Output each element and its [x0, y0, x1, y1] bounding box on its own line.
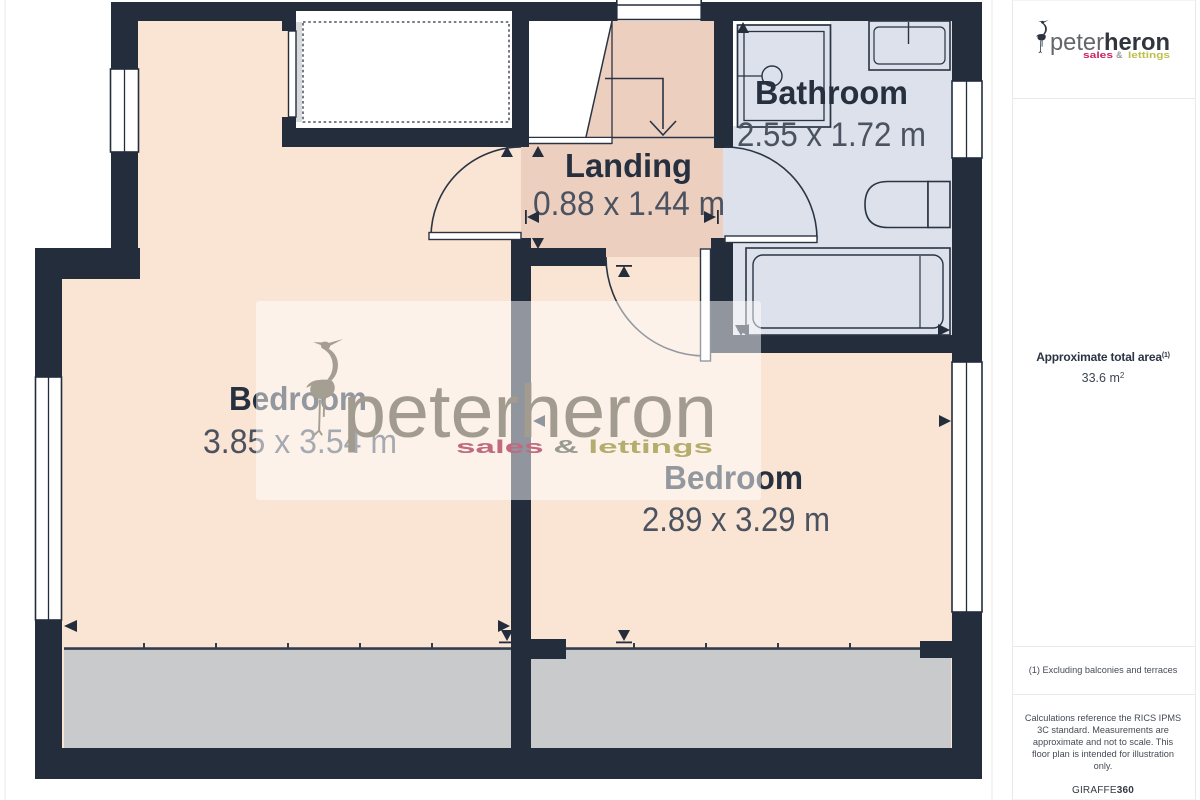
- svg-text:2.89 x 3.29 m: 2.89 x 3.29 m: [642, 501, 830, 539]
- svg-text:Calculations reference the RIC: Calculations reference the RICS IPMS: [1025, 713, 1181, 723]
- svg-text:approximate and not to scale.: approximate and not to scale. This: [1033, 737, 1174, 747]
- svg-text:GIRAFFE360: GIRAFFE360: [1072, 785, 1134, 796]
- svg-text:(1) Excluding balconies and te: (1) Excluding balconies and terraces: [1029, 665, 1178, 675]
- svg-text:2.55 x 1.72 m: 2.55 x 1.72 m: [737, 116, 926, 154]
- svg-text:Landing: Landing: [565, 147, 692, 184]
- svg-text:only.: only.: [1094, 761, 1113, 771]
- svg-text:3C standard. Measurements are: 3C standard. Measurements are: [1037, 725, 1169, 735]
- svg-text:floor plan is intended for ill: floor plan is intended for illustration: [1032, 749, 1174, 759]
- svg-text:&: &: [1116, 50, 1123, 60]
- svg-text:sales: sales: [1083, 50, 1113, 60]
- svg-text:lettings: lettings: [1128, 50, 1170, 60]
- svg-text:Approximate total area(1): Approximate total area(1): [1036, 350, 1170, 364]
- svg-text:sales & lettings: sales & lettings: [456, 437, 713, 457]
- svg-text:33.6 m2: 33.6 m2: [1082, 371, 1125, 385]
- svg-text:Bathroom: Bathroom: [755, 74, 908, 111]
- svg-text:0.88 x 1.44 m: 0.88 x 1.44 m: [533, 185, 725, 223]
